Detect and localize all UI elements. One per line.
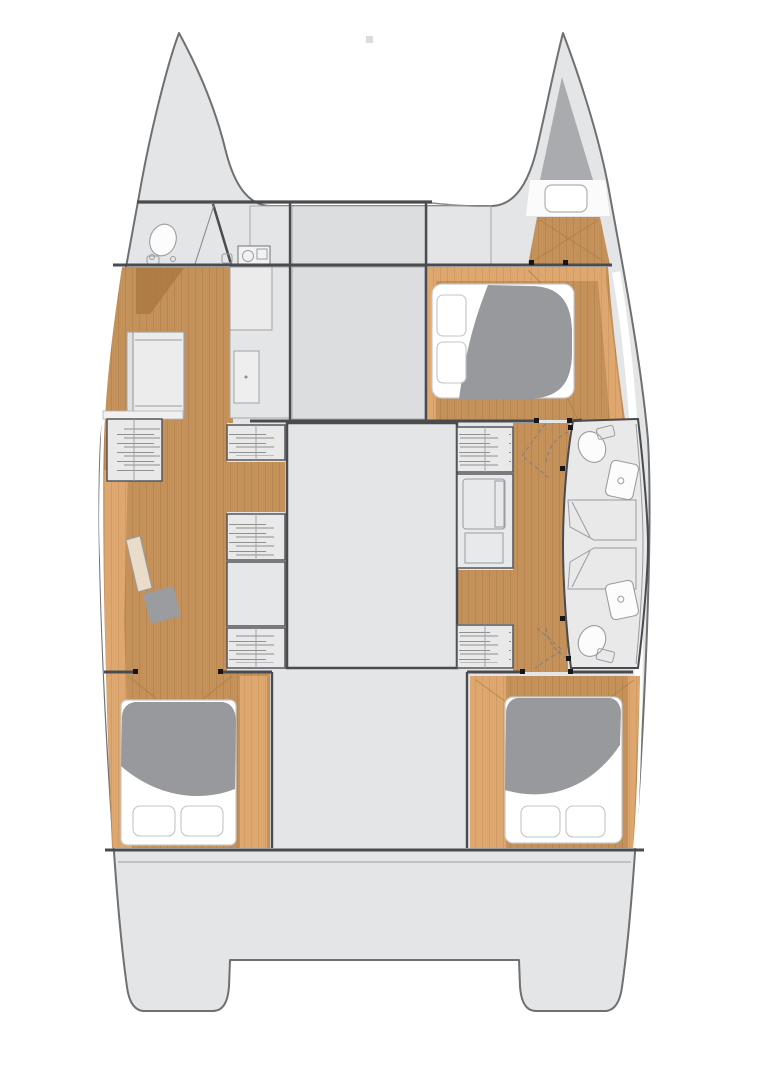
floor-plan-canvas [0, 0, 771, 1080]
hinge-mark [567, 418, 572, 423]
starboard-corridor-wood [513, 423, 570, 672]
sofa-berth [133, 332, 184, 416]
starboard-steps-wood-gap [457, 570, 513, 624]
companionway-steps [227, 514, 285, 560]
hinge-mark [218, 669, 223, 674]
fwd-cabin-top-margin [436, 267, 606, 281]
hinge-mark [563, 260, 568, 265]
locker-panel [427, 206, 491, 265]
stbd-aft-light-column [470, 676, 506, 848]
pillow [566, 806, 605, 837]
companionway-steps [227, 425, 285, 460]
hinge-mark [133, 669, 138, 674]
locker-handle [245, 376, 248, 379]
step-landing [103, 411, 183, 419]
hinge-mark [560, 466, 565, 471]
hinge-mark [560, 616, 565, 621]
pillow [133, 806, 175, 836]
pillow [521, 806, 560, 837]
hinge-mark [520, 669, 525, 674]
pillow [437, 342, 466, 383]
port-aft-light-column [240, 676, 267, 848]
hinge-mark [568, 669, 573, 674]
locker-panel [292, 206, 427, 265]
foredeck-lockers [250, 36, 491, 265]
main-saloon-deck [287, 423, 457, 668]
double-bed-forward [432, 284, 574, 399]
pillow [437, 295, 466, 336]
galley-counter [457, 474, 513, 568]
double-bed-port-aft [121, 700, 236, 845]
companionway-steps [227, 628, 285, 668]
cabinet-plain [227, 562, 285, 626]
pillow [181, 806, 223, 836]
forward-saloon-panel [292, 267, 425, 419]
hinge-mark [566, 656, 571, 661]
deck-fitting-mark [366, 36, 373, 43]
companionway-steps [457, 427, 513, 472]
cabinet [230, 267, 272, 330]
companionway-steps [107, 419, 162, 481]
hinge-mark [534, 418, 539, 423]
bathroom-block [563, 419, 648, 668]
bathroom-outline [563, 419, 648, 668]
catamaran-floor-plan [0, 0, 771, 1080]
double-bed-starboard-aft [505, 697, 622, 843]
deck-hatch [545, 185, 587, 212]
port-steps-wood-gap [227, 462, 285, 512]
companionway-steps [457, 625, 513, 668]
hinge-mark [568, 425, 573, 430]
hinge-mark [529, 260, 534, 265]
